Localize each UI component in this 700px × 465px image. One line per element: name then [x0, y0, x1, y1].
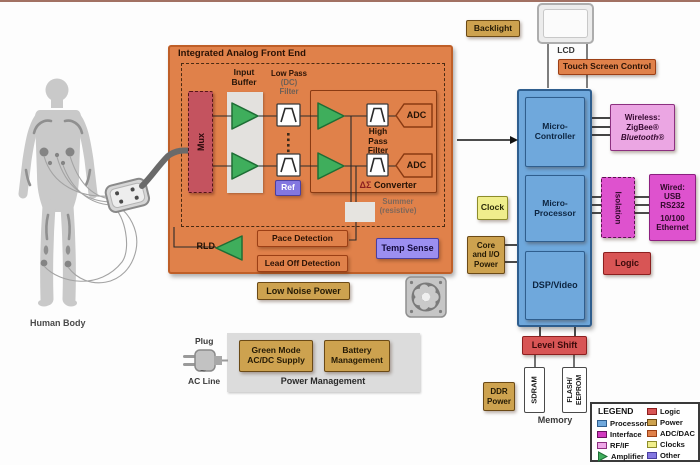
rld-label: RLD: [190, 241, 215, 251]
summer-line2: (resistive): [368, 207, 428, 216]
afe-title: Integrated Analog Front End: [178, 49, 306, 60]
micro-processor-block: Micro- Processor: [525, 175, 585, 242]
legend-item-label: Processor: [610, 419, 647, 428]
delta-sigma-converter-label: ΔΣ Converter: [340, 180, 436, 190]
legend-item-label: RF/IF: [610, 441, 629, 450]
block-diagram-canvas: Integrated Analog Front End Mux Input Bu…: [0, 0, 700, 465]
legend-column-2: LogicPowerADC/DACClocksOther: [647, 406, 695, 461]
legend-item: Other: [647, 450, 695, 461]
legend-box: LEGEND ProcessorInterfaceRF/IFAmplifier …: [590, 402, 700, 462]
touch-screen-control-block: Touch Screen Control: [558, 59, 656, 75]
wired-line1: Wired:: [660, 183, 685, 192]
input-buffer-label: Input Buffer: [219, 68, 269, 88]
legend-item-label: Interface: [610, 430, 642, 439]
power-management-label: Power Management: [263, 376, 383, 386]
adc-label-1: ADC: [400, 110, 433, 120]
ac-line-label: AC Line: [188, 377, 220, 387]
sdram-label: SDRAM: [530, 376, 539, 404]
core-io-power-block: Core and I/O Power: [467, 236, 505, 274]
legend-item: RF/IF: [597, 440, 647, 451]
micro-processor-line2: Processor: [534, 209, 576, 219]
flash-eeprom-label: FLASH/ EEPROM: [565, 368, 583, 412]
legend-color-swatch: [597, 420, 607, 427]
legend-color-swatch: [647, 419, 657, 426]
fan-icon: [406, 277, 446, 317]
human-body-silhouette: [23, 79, 93, 307]
level-shift-block: Level Shift: [522, 336, 587, 355]
legend-item: Logic: [647, 406, 695, 417]
flash-line2: EEPROM: [575, 368, 584, 412]
adc-label-2: ADC: [400, 160, 433, 170]
core-io-line3: Power: [474, 260, 498, 269]
afe-to-mcu-arrow: [457, 136, 518, 144]
wired-block: Wired: USB RS232 10/100 Ethernet: [649, 174, 696, 241]
sdram-block: SDRAM: [524, 367, 545, 413]
mux-block: Mux: [188, 91, 213, 193]
wired-line4: 10/100: [660, 214, 684, 223]
input-buffer-panel: [227, 92, 263, 193]
lead-off-detection-block: Lead Off Detection: [257, 255, 348, 272]
logic-block: Logic: [603, 252, 651, 275]
top-border-line: [0, 0, 700, 2]
high-pass-line3: Filter: [356, 146, 400, 156]
delta-sigma-symbol: ΔΣ: [360, 180, 372, 190]
green-mode-supply-block: Green Mode AC/DC Supply: [239, 340, 313, 372]
wireless-line1: Wireless:: [625, 113, 661, 122]
legend-item: Processor: [597, 418, 647, 429]
wireless-block: Wireless: ZigBee® Bluetooth®: [610, 104, 675, 151]
human-body-label: Human Body: [30, 318, 86, 328]
ecg-electrodes: [40, 148, 75, 268]
wired-line5: Ethernet: [656, 223, 688, 232]
legend-item: Clocks: [647, 439, 695, 450]
legend-item-label: ADC/DAC: [660, 429, 695, 438]
temp-sense-block: Temp Sense: [376, 238, 439, 259]
high-pass-filter-label: High Pass Filter: [356, 127, 400, 156]
core-io-line1: Core: [477, 241, 495, 250]
body-markings: [26, 121, 90, 255]
memory-label: Memory: [530, 415, 580, 425]
ddr-power-block: DDR Power: [483, 382, 515, 411]
legend-color-swatch: [597, 431, 607, 438]
battery-management-block: Battery Management: [324, 340, 390, 372]
wireless-line2: ZigBee®: [626, 123, 659, 132]
legend-item: Amplifier: [597, 451, 647, 462]
isolation-label: Isolation: [613, 191, 622, 224]
flash-eeprom-block: FLASH/ EEPROM: [562, 367, 587, 413]
micro-controller-line2: Controller: [535, 132, 576, 142]
battery-line2: Management: [331, 356, 383, 366]
legend-color-swatch: [647, 441, 657, 448]
legend-item: Interface: [597, 429, 647, 440]
backlight-block: Backlight: [466, 20, 520, 37]
legend-color-swatch: [647, 408, 657, 415]
low-noise-power-block: Low Noise Power: [257, 282, 350, 300]
legend-item-label: Power: [660, 418, 683, 427]
legend-item-label: Amplifier: [611, 452, 644, 461]
micro-controller-block: Micro- Controller: [525, 97, 585, 167]
ddr-line2: Power: [487, 397, 511, 406]
clock-block: Clock: [477, 196, 508, 220]
legend-item-label: Logic: [660, 407, 680, 416]
legend-column-1: ProcessorInterfaceRF/IFAmplifier: [597, 418, 647, 462]
low-pass-line3: Filter: [267, 88, 311, 97]
lcd-label: LCD: [550, 46, 582, 56]
legend-color-swatch: [647, 452, 657, 459]
ref-block: Ref: [275, 180, 301, 196]
legend-item: Power: [647, 417, 695, 428]
legend-item-label: Other: [660, 451, 680, 460]
wireless-line3: Bluetooth®: [621, 133, 664, 142]
converter-word: Converter: [374, 180, 417, 190]
plug-label: Plug: [195, 337, 213, 347]
ddr-line1: DDR: [490, 387, 507, 396]
isolation-block: Isolation: [601, 177, 635, 238]
low-pass-filter-label: Low Pass (DC) Filter: [267, 70, 311, 97]
dsp-video-block: DSP/Video: [525, 251, 585, 320]
legend-title: LEGEND: [598, 407, 633, 417]
legend-item: ADC/DAC: [647, 428, 695, 439]
summer-label: Summer (resistive): [368, 198, 428, 216]
lead-connector: [104, 177, 150, 213]
wired-line3: RS232: [660, 201, 684, 210]
input-buffer-line2: Buffer: [219, 78, 269, 88]
ecg-lead-wires: [44, 156, 137, 283]
green-mode-line2: AC/DC Supply: [247, 356, 305, 366]
pace-detection-block: Pace Detection: [257, 230, 348, 247]
flash-line1: FLASH/: [565, 368, 574, 412]
legend-color-swatch: [647, 430, 657, 437]
legend-item-label: Clocks: [660, 440, 685, 449]
legend-amplifier-triangle-swatch: [597, 451, 608, 462]
wired-line2: USB: [664, 192, 681, 201]
legend-color-swatch: [597, 442, 607, 449]
mux-label: Mux: [195, 133, 205, 151]
lcd-icon: [537, 3, 594, 44]
core-io-line2: and I/O: [472, 250, 499, 259]
lcd-screen: [543, 9, 588, 38]
